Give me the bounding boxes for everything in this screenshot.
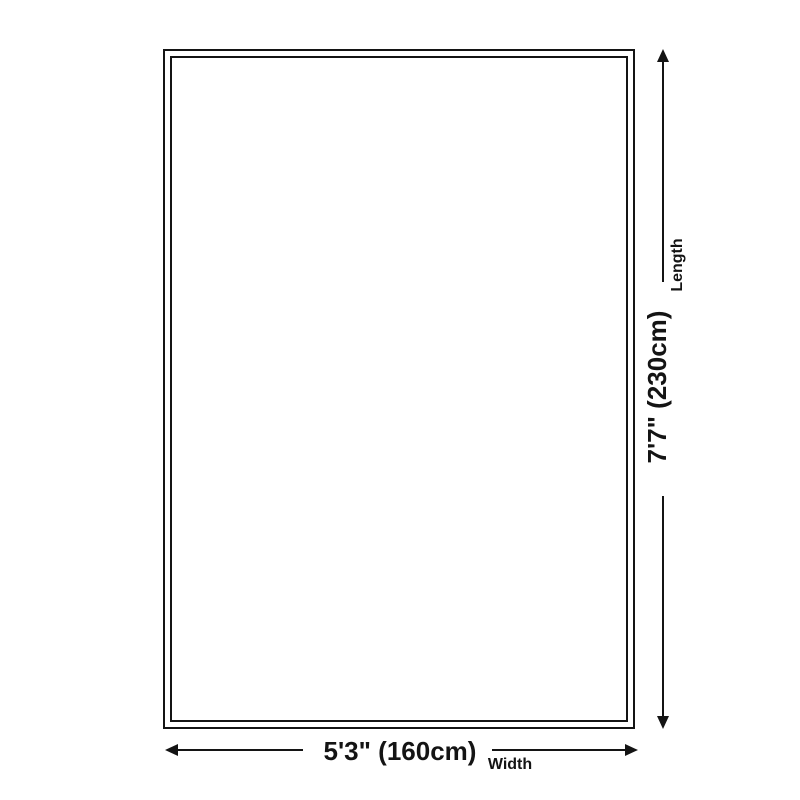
length-value: 7'7" (230cm)	[644, 311, 670, 464]
width-value: 5'3" (160cm)	[324, 738, 477, 764]
width-arrow-right-icon	[625, 744, 638, 756]
length-arrow-shaft-bottom	[662, 496, 664, 717]
rug-outer-outline	[163, 49, 635, 729]
rug-dimension-diagram: 7'7" (230cm) Length 5'3" (160cm) Width	[0, 0, 800, 800]
length-arrow-down-icon	[657, 716, 669, 729]
width-arrow-shaft-right	[492, 749, 626, 751]
width-arrow-shaft-left	[177, 749, 303, 751]
rug-inner-outline	[170, 56, 628, 722]
length-label: Length	[670, 238, 686, 291]
width-label: Width	[488, 757, 532, 773]
length-arrow-shaft-top	[662, 60, 664, 282]
